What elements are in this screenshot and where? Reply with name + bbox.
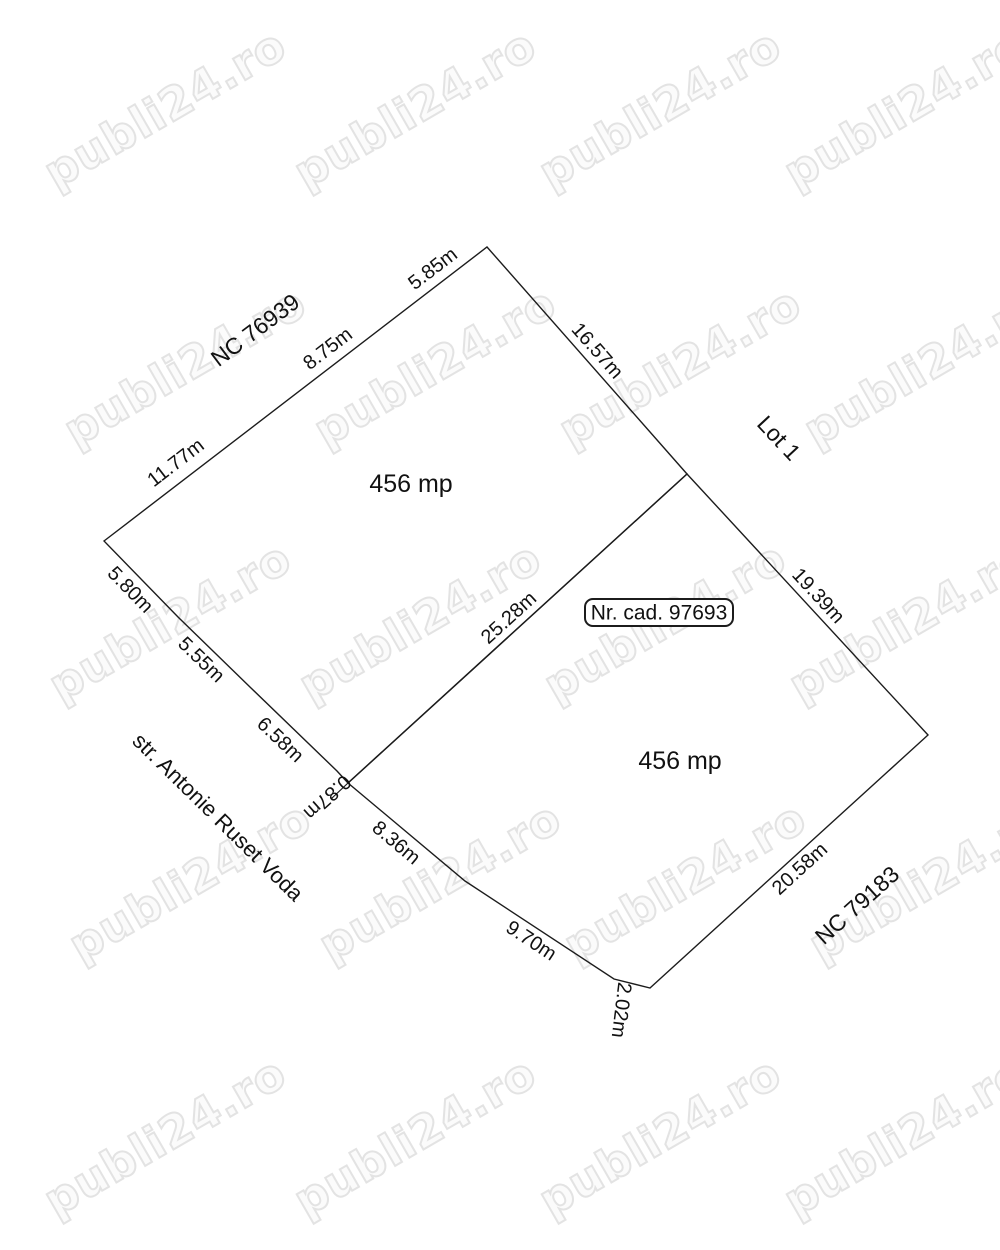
edge-label-16-57: 16.57m — [567, 319, 628, 384]
parcel-2-area-label: 456 mp — [638, 747, 721, 775]
survey-drawing: 5.85m 8.75m 11.77m 16.57m 19.39m 25.28m … — [0, 0, 1000, 1250]
cadastral-number-box: Nr. cad. 97693 — [585, 599, 733, 626]
edge-label-6-58: 6.58m — [252, 713, 307, 767]
edge-label-20-58: 20.58m — [768, 838, 832, 899]
edge-label-0-87: 0.87m — [299, 770, 355, 824]
cadastral-number-label: Nr. cad. 97693 — [591, 602, 728, 625]
edge-label-11-77: 11.77m — [143, 434, 208, 491]
edge-label-8-75: 8.75m — [299, 323, 356, 374]
neighbor-label-nc-79183: NC 79183 — [810, 861, 904, 950]
edge-label-25-28: 25.28m — [477, 587, 541, 648]
edge-label-5-55: 5.55m — [173, 633, 228, 687]
edge-label-19-39: 19.39m — [787, 564, 848, 628]
cadastral-plan: publi24.ro publi24.ro publi24.ro publi24… — [0, 0, 1000, 1250]
edge-label-5-80: 5.80m — [103, 562, 158, 617]
neighbor-label-nc-76939: NC 76939 — [206, 288, 304, 371]
parcel-1-area-label: 456 mp — [369, 470, 452, 498]
edge-label-5-85: 5.85m — [404, 243, 461, 294]
parcel-1-outline — [104, 247, 687, 783]
edge-label-2-02: 2.02m — [607, 981, 636, 1039]
edge-label-8-36: 8.36m — [368, 817, 425, 870]
neighbor-label-lot-1: Lot 1 — [752, 410, 806, 465]
